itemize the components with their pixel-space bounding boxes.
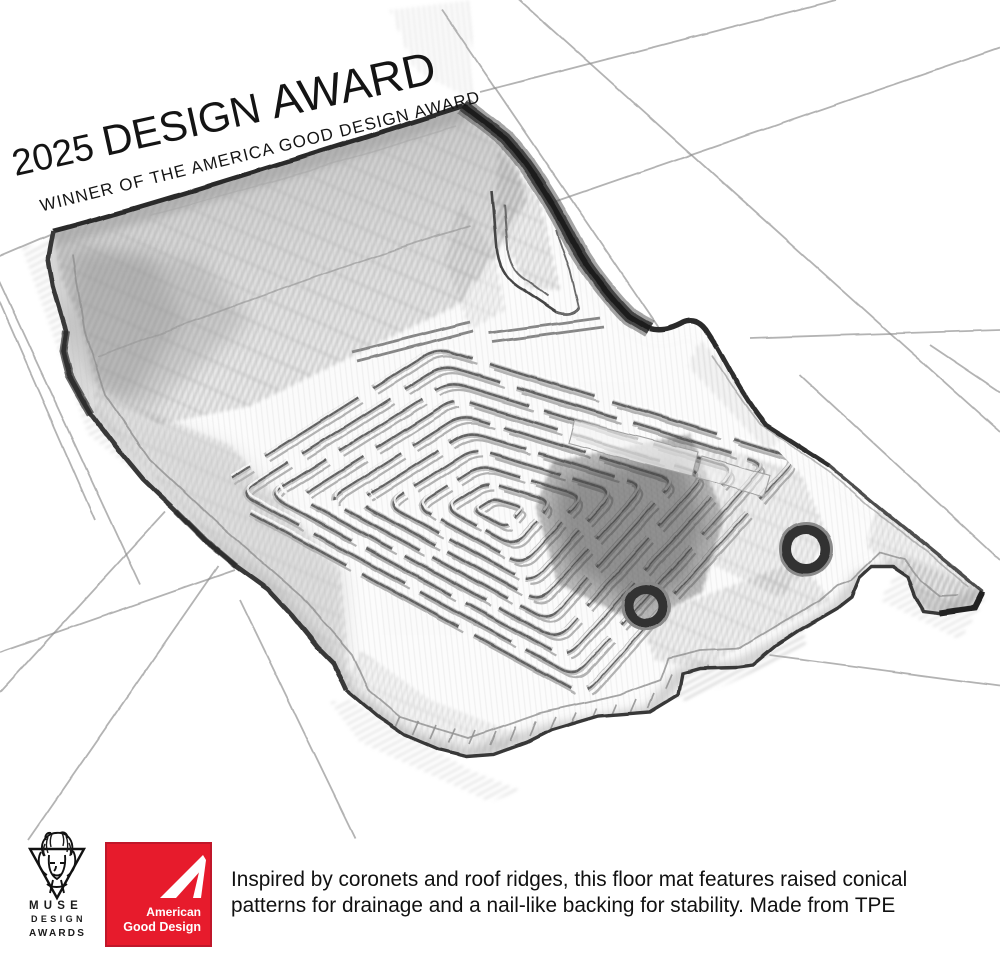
svg-text:AWARDS: AWARDS [29,928,86,939]
svg-text:MUSE: MUSE [29,900,83,912]
svg-text:DESIGN: DESIGN [31,914,86,924]
